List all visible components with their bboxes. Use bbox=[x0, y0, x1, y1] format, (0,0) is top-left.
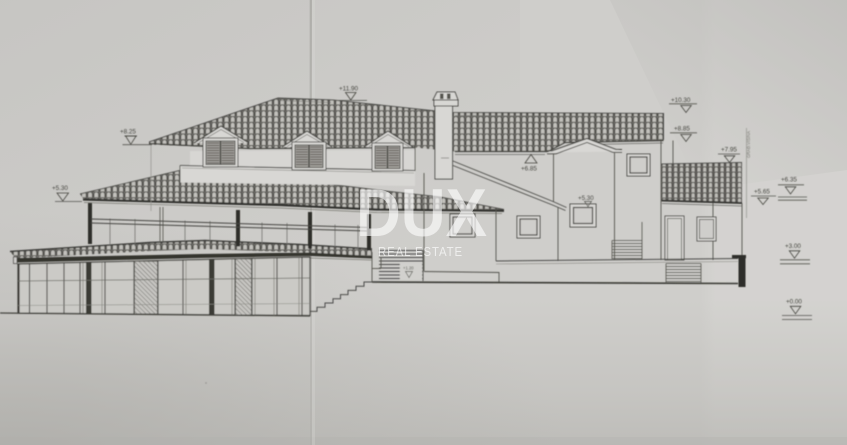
svg-text:+8.85: +8.85 bbox=[674, 126, 690, 133]
svg-text:+8.25: +8.25 bbox=[120, 129, 136, 136]
svg-text:+11.90: +11.90 bbox=[339, 86, 358, 93]
svg-text:+5.65: +5.65 bbox=[754, 189, 770, 196]
svg-text:REAL ESTATE: REAL ESTATE bbox=[378, 245, 463, 259]
svg-text:+10.30: +10.30 bbox=[671, 97, 691, 104]
svg-text:+6.85: +6.85 bbox=[521, 166, 537, 173]
svg-text:+6.35: +6.35 bbox=[781, 177, 797, 184]
svg-text:+5.30: +5.30 bbox=[578, 195, 594, 202]
svg-text:DUX: DUX bbox=[356, 175, 487, 251]
svg-text:+0.00: +0.00 bbox=[786, 299, 802, 306]
svg-text:+1.20: +1.20 bbox=[403, 266, 414, 271]
svg-text:+5.30: +5.30 bbox=[52, 185, 68, 192]
svg-text:GRAĐ.VISINA: GRAĐ.VISINA bbox=[746, 131, 751, 158]
svg-text:+3.00: +3.00 bbox=[785, 243, 801, 250]
svg-text:+7.95: +7.95 bbox=[721, 147, 737, 154]
